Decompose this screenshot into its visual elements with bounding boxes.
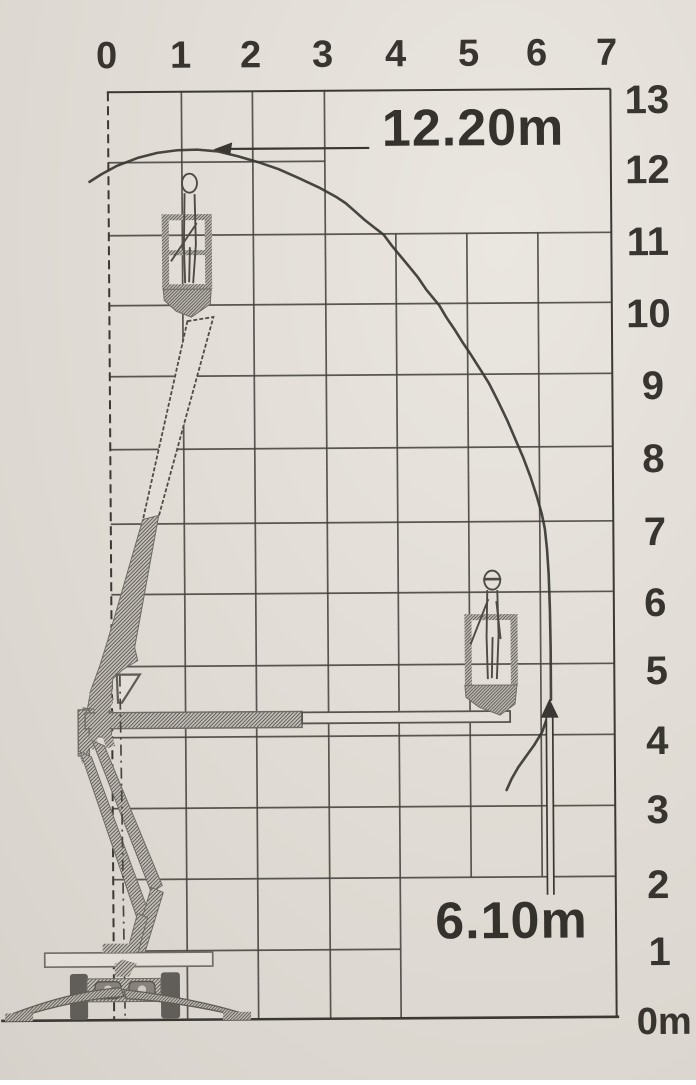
svg-text:8: 8 [642, 437, 665, 481]
svg-text:5: 5 [646, 649, 669, 693]
svg-text:6: 6 [644, 581, 667, 625]
svg-text:11: 11 [627, 220, 670, 264]
svg-text:1: 1 [648, 930, 671, 974]
svg-text:7: 7 [596, 32, 617, 74]
svg-text:1: 1 [170, 35, 191, 77]
svg-text:6.10m: 6.10m [435, 891, 588, 950]
svg-text:5: 5 [458, 33, 479, 75]
svg-text:4: 4 [385, 33, 406, 75]
svg-text:3: 3 [312, 34, 333, 76]
svg-text:2: 2 [647, 863, 670, 907]
svg-text:4: 4 [646, 719, 669, 763]
svg-text:0m: 0m [637, 1001, 692, 1043]
svg-text:12: 12 [625, 148, 670, 192]
svg-text:9: 9 [642, 364, 665, 408]
svg-text:13: 13 [625, 78, 670, 122]
svg-text:12.20m: 12.20m [382, 99, 565, 158]
svg-text:3: 3 [646, 788, 669, 832]
svg-text:0: 0 [96, 35, 117, 77]
svg-text:7: 7 [644, 510, 667, 554]
svg-text:6: 6 [526, 32, 547, 74]
svg-text:10: 10 [626, 292, 671, 336]
svg-text:2: 2 [240, 34, 261, 76]
